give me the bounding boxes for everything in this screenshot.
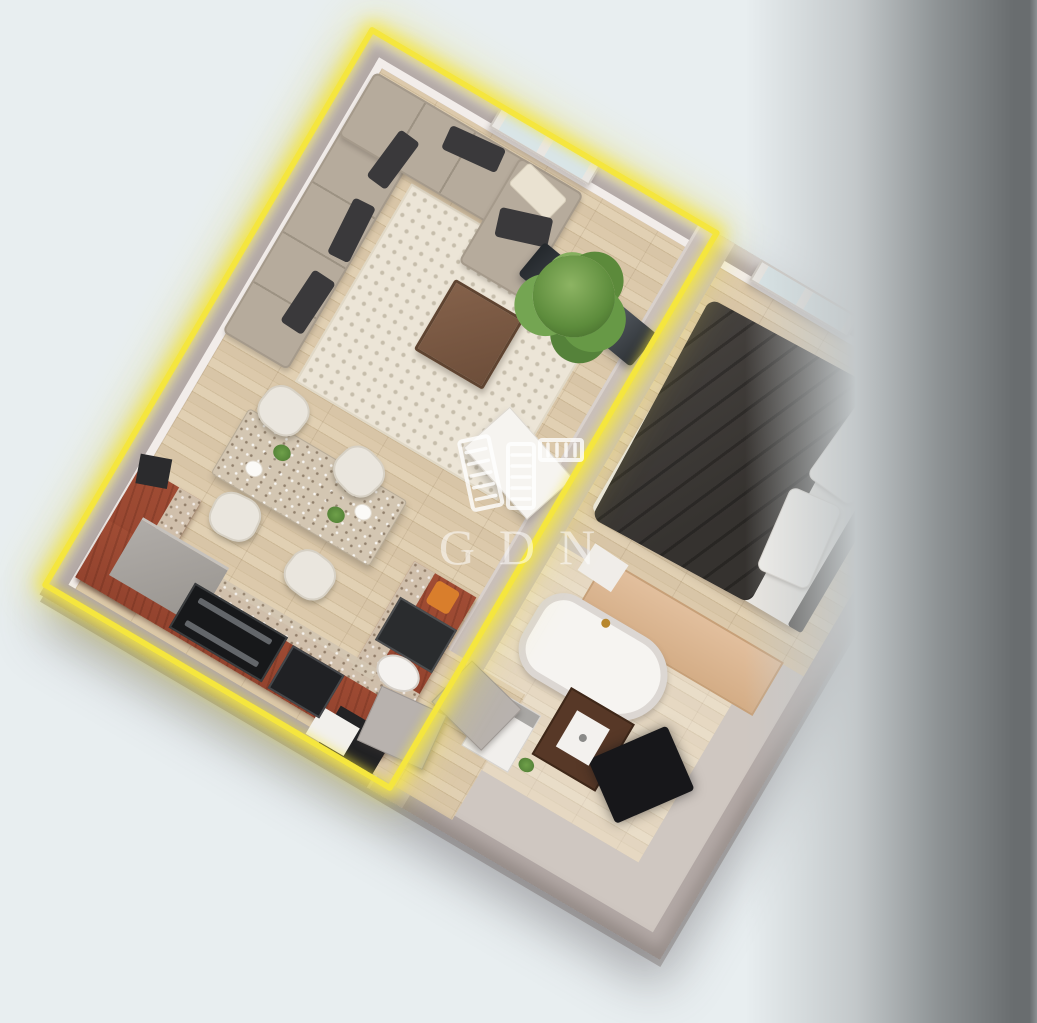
floorplan-scene: GDN bbox=[0, 0, 1037, 1023]
buildings-logo-icon bbox=[448, 430, 586, 516]
cabinet-side-panel bbox=[135, 454, 172, 489]
watermark-text: GDN bbox=[414, 522, 644, 572]
watermark: GDN bbox=[414, 430, 620, 572]
